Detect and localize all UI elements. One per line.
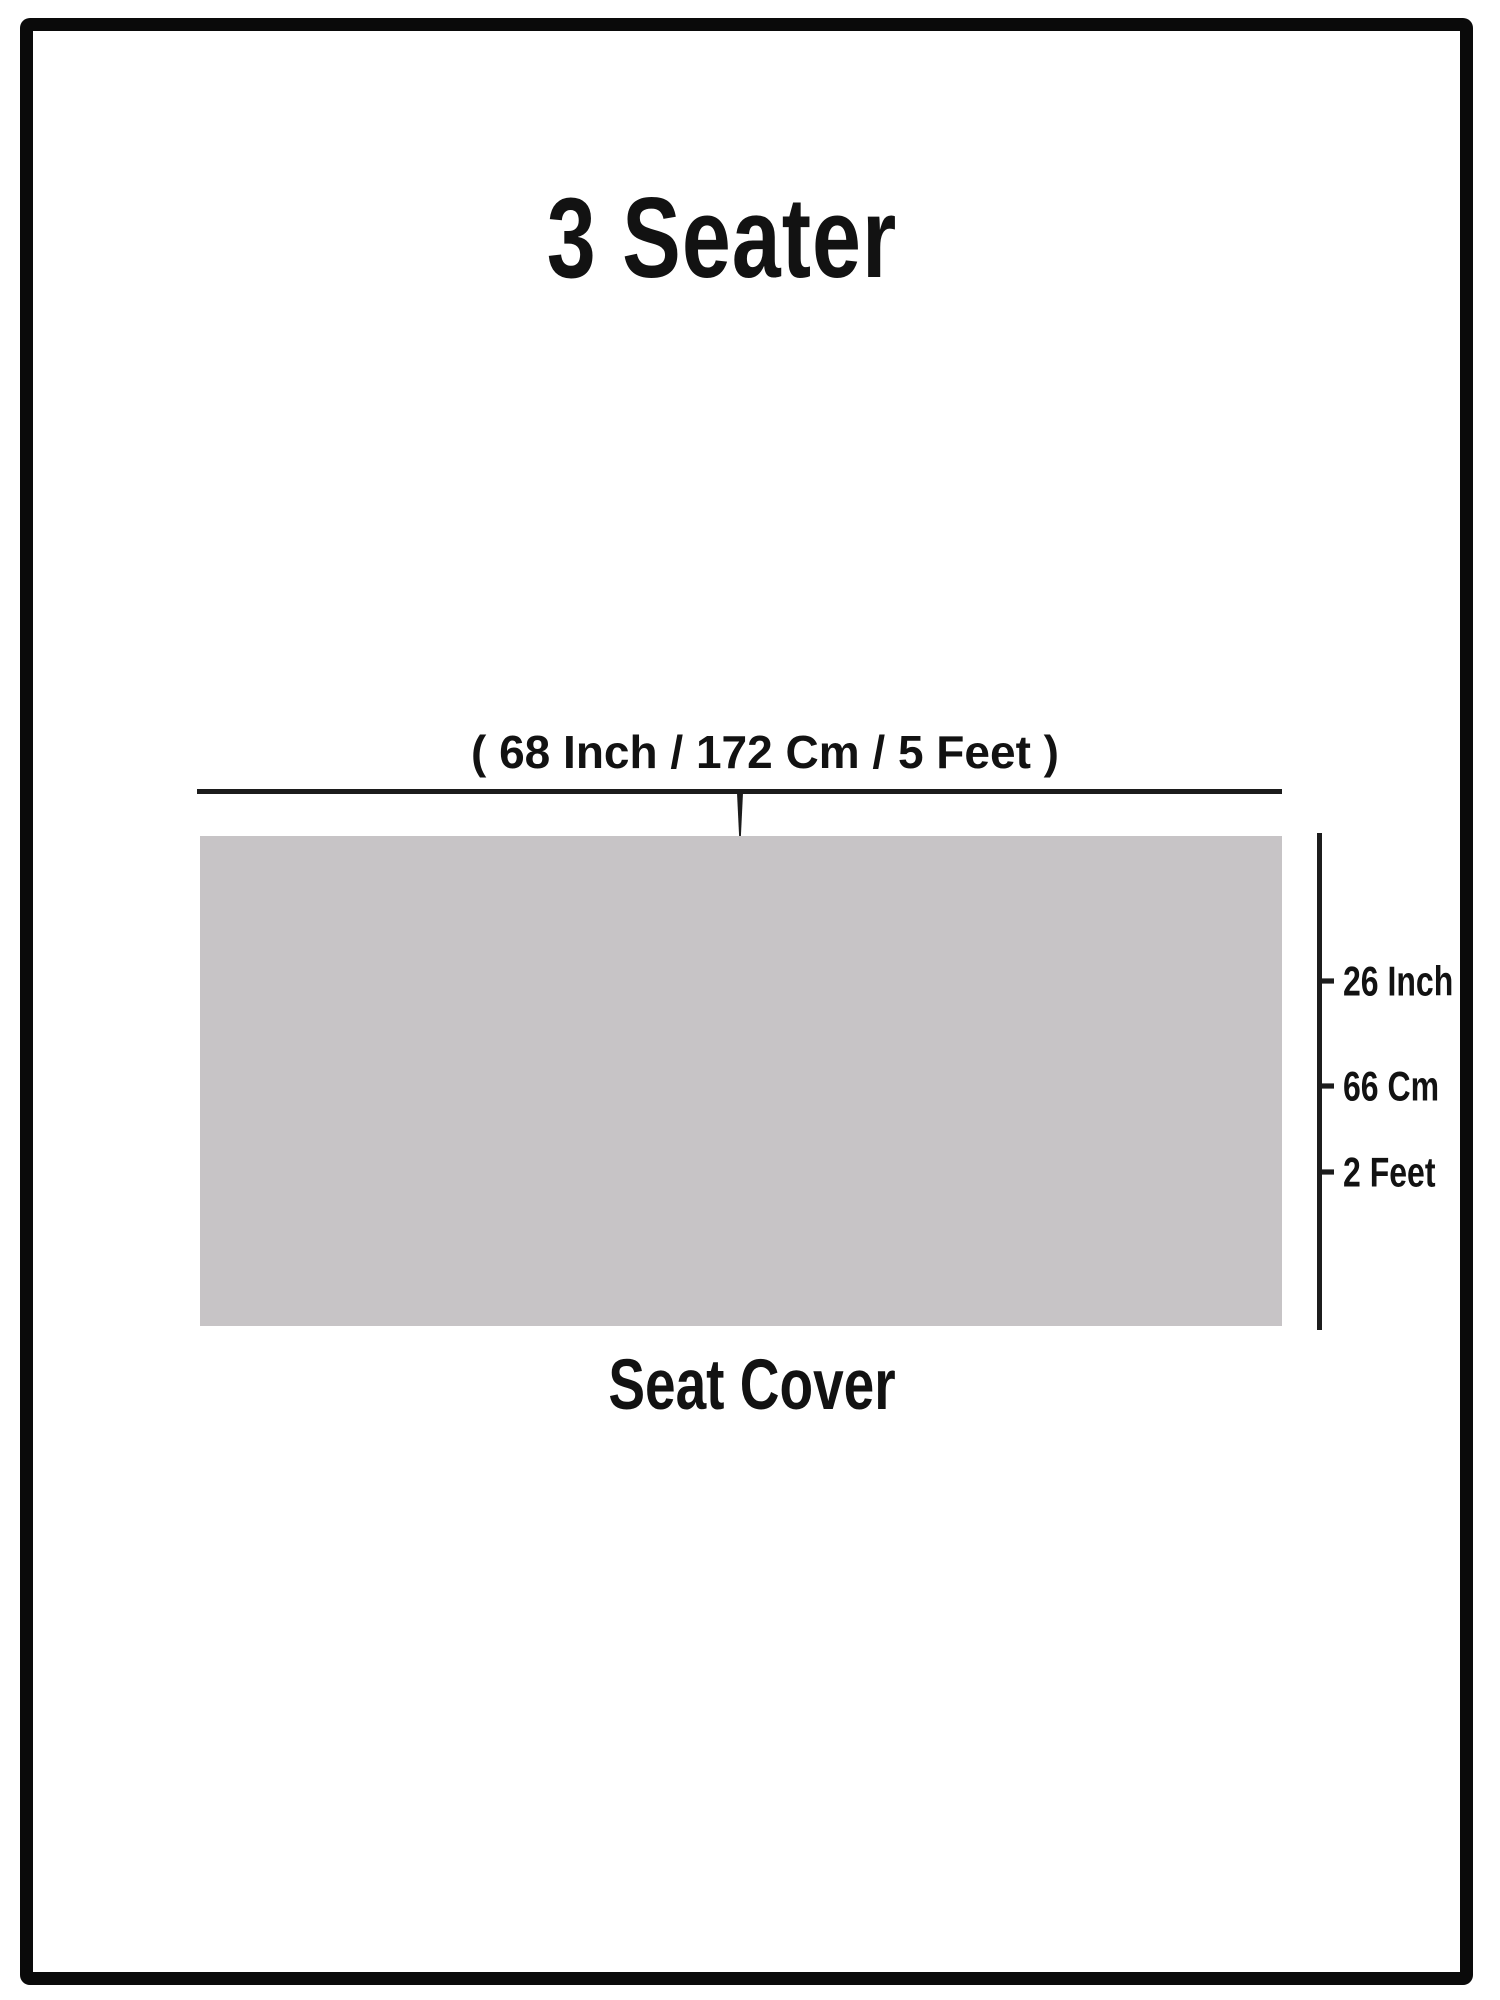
page-title: 3 Seater <box>0 181 1472 295</box>
tick-mark <box>1318 1169 1334 1174</box>
tick-mark <box>1318 1083 1334 1088</box>
height-dimension-row-inch: 26 Inch <box>1318 952 1453 1009</box>
height-dimension-row-feet: 2 Feet <box>1318 1143 1435 1200</box>
width-dimension-label: ( 68 Inch / 172 Cm / 5 Feet ) <box>15 729 1500 775</box>
height-label-cm: 66 Cm <box>1343 1065 1439 1107</box>
height-label-feet: 2 Feet <box>1343 1151 1435 1193</box>
height-label-inch: 26 Inch <box>1343 960 1453 1002</box>
tick-mark <box>1318 978 1334 983</box>
seat-cover-rectangle <box>200 836 1282 1326</box>
seat-cover-dimension-diagram: 3 Seater ( 68 Inch / 172 Cm / 5 Feet ) 2… <box>0 0 1500 2000</box>
product-caption: Seat Cover <box>2 1349 1500 1421</box>
height-dimension-row-cm: 66 Cm <box>1318 1057 1439 1114</box>
